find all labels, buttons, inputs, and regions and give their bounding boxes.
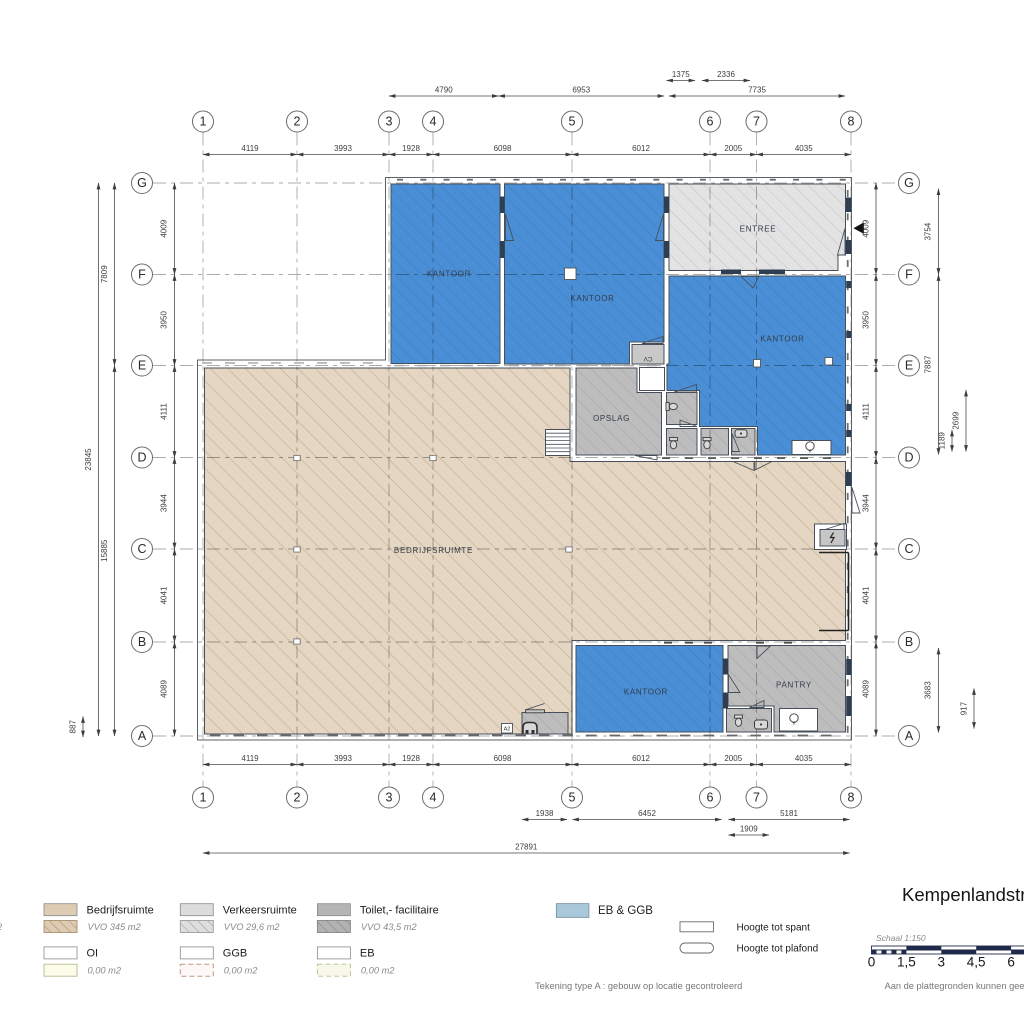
svg-text:KANTOOR: KANTOOR: [624, 688, 668, 697]
svg-text:6452: 6452: [638, 809, 656, 818]
svg-text:0,00 m2: 0,00 m2: [88, 966, 122, 976]
svg-text:Hoogte tot plafond: Hoogte tot plafond: [737, 944, 819, 955]
svg-text:1909: 1909: [740, 825, 758, 834]
svg-text:CV: CV: [643, 355, 653, 362]
svg-text:Toilet,- facilitaire: Toilet,- facilitaire: [360, 905, 439, 917]
svg-text:4790: 4790: [435, 86, 453, 95]
svg-text:6098: 6098: [494, 754, 512, 763]
svg-text:6098: 6098: [494, 144, 512, 153]
svg-text:4041: 4041: [160, 586, 169, 604]
svg-text:6953: 6953: [572, 86, 590, 95]
svg-text:5181: 5181: [780, 809, 798, 818]
svg-text:3754: 3754: [924, 222, 933, 240]
svg-text:2005: 2005: [724, 144, 742, 153]
svg-text:A: A: [905, 729, 914, 743]
svg-text:4119: 4119: [241, 754, 259, 763]
svg-text:3950: 3950: [160, 311, 169, 329]
svg-text:C: C: [904, 542, 913, 556]
svg-text:2699: 2699: [952, 411, 961, 429]
svg-text:Bedrijfsruimte: Bedrijfsruimte: [87, 905, 154, 917]
svg-text:B: B: [905, 635, 913, 649]
svg-text:4,5: 4,5: [967, 955, 986, 970]
svg-text:8: 8: [848, 791, 855, 805]
svg-text:F: F: [905, 268, 913, 282]
svg-text:4035: 4035: [795, 144, 813, 153]
svg-text:1928: 1928: [402, 754, 420, 763]
svg-text:23845: 23845: [84, 448, 93, 471]
svg-text:KANTOOR: KANTOOR: [570, 294, 614, 303]
svg-text:KANTOOR: KANTOOR: [427, 270, 471, 279]
svg-text:OPSLAG: OPSLAG: [593, 414, 630, 423]
svg-text:0: 0: [868, 955, 876, 970]
svg-text:VVO 29,6 m2: VVO 29,6 m2: [224, 922, 281, 932]
svg-text:4089: 4089: [160, 680, 169, 698]
svg-text:4: 4: [430, 115, 437, 129]
svg-text:D: D: [904, 451, 913, 465]
svg-text:5: 5: [569, 115, 576, 129]
svg-text:887: 887: [69, 720, 78, 734]
svg-text:917: 917: [960, 701, 969, 715]
svg-text:A: A: [138, 729, 147, 743]
svg-text:6012: 6012: [632, 144, 650, 153]
svg-text:Aan de plattegronden kunnen ge: Aan de plattegronden kunnen geen rechten: [885, 981, 1024, 991]
svg-text:OI: OI: [87, 948, 99, 960]
svg-text:4009: 4009: [862, 219, 871, 237]
svg-text:E: E: [905, 359, 913, 373]
svg-text:Schaal 1:150: Schaal 1:150: [876, 933, 926, 943]
svg-text:VVO 345 m2: VVO 345 m2: [88, 922, 142, 932]
svg-text:KANTOOR: KANTOOR: [760, 335, 804, 344]
svg-text:7: 7: [753, 115, 760, 129]
svg-text:3950: 3950: [862, 311, 871, 329]
svg-text:PANTRY: PANTRY: [776, 681, 812, 690]
svg-text:3: 3: [386, 791, 393, 805]
svg-text:1938: 1938: [536, 809, 554, 818]
svg-text:1928: 1928: [402, 144, 420, 153]
svg-text:3993: 3993: [334, 144, 352, 153]
svg-text:2005: 2005: [724, 754, 742, 763]
svg-text:4035: 4035: [795, 754, 813, 763]
svg-text:6012: 6012: [632, 754, 650, 763]
svg-text:8: 8: [848, 115, 855, 129]
svg-text:1189: 1189: [938, 432, 947, 450]
svg-text:3944: 3944: [160, 494, 169, 512]
svg-text:5: 5: [569, 791, 576, 805]
svg-text:2336: 2336: [717, 70, 735, 79]
svg-text:7887: 7887: [924, 355, 933, 373]
svg-text:3993: 3993: [334, 754, 352, 763]
svg-text:EB & GGB: EB & GGB: [598, 905, 653, 917]
svg-text:4111: 4111: [160, 403, 169, 420]
svg-text:7: 7: [753, 791, 760, 805]
svg-text:Verkeersruimte: Verkeersruimte: [223, 905, 297, 917]
svg-text:7809: 7809: [100, 265, 109, 283]
svg-text:6: 6: [1007, 955, 1015, 970]
svg-text:2: 2: [294, 791, 301, 805]
svg-text:3944: 3944: [862, 494, 871, 512]
svg-text:27891: 27891: [515, 843, 538, 852]
svg-text:1375: 1375: [672, 70, 690, 79]
svg-text:0,00 m2: 0,00 m2: [361, 966, 395, 976]
svg-text:F: F: [138, 268, 146, 282]
svg-text:2: 2: [294, 115, 301, 129]
svg-text:Tekening type A : gebouw op lo: Tekening type A : gebouw op locatie geco…: [535, 981, 742, 991]
svg-text:C: C: [137, 542, 146, 556]
svg-text:1: 1: [200, 791, 207, 805]
svg-text:G: G: [137, 176, 147, 190]
svg-text:G: G: [904, 176, 914, 190]
svg-text:3: 3: [386, 115, 393, 129]
svg-text:A2: A2: [504, 727, 511, 733]
svg-text:Kempenlandstraat 1: Kempenlandstraat 1: [902, 884, 1024, 905]
svg-text:ENTREE: ENTREE: [740, 225, 777, 234]
svg-text:GGB: GGB: [223, 948, 247, 960]
svg-text:4119: 4119: [241, 144, 259, 153]
svg-text:BEDRIJFSRUIMTE: BEDRIJFSRUIMTE: [394, 546, 473, 555]
svg-text:E: E: [138, 359, 146, 373]
svg-text:Hoogte tot spant: Hoogte tot spant: [737, 922, 811, 933]
svg-text:VVO 43,5 m2: VVO 43,5 m2: [361, 922, 418, 932]
svg-text:4089: 4089: [862, 680, 871, 698]
svg-text:0,00 m2: 0,00 m2: [224, 966, 258, 976]
svg-text:15885: 15885: [100, 539, 109, 562]
svg-text:1: 1: [200, 115, 207, 129]
svg-text:1,5: 1,5: [897, 955, 916, 970]
svg-text:6: 6: [707, 791, 714, 805]
svg-text:6: 6: [707, 115, 714, 129]
svg-text:B: B: [138, 635, 146, 649]
svg-text:D: D: [137, 451, 146, 465]
svg-text:4041: 4041: [862, 586, 871, 604]
svg-text:3683: 3683: [924, 681, 933, 699]
svg-text:4: 4: [430, 791, 437, 805]
svg-text:4009: 4009: [160, 219, 169, 237]
svg-text:3: 3: [938, 955, 946, 970]
svg-text:EB: EB: [360, 948, 375, 960]
svg-text:7735: 7735: [748, 86, 766, 95]
svg-text:4111: 4111: [862, 403, 871, 420]
